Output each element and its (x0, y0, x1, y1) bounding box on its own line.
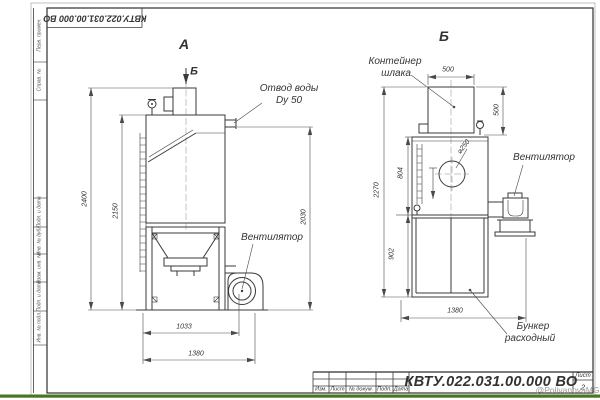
water-outlet-label-line1: Отвод воды (260, 84, 318, 94)
feed-hopper-label-line1: Бункер (517, 322, 550, 332)
frame-label-podp-data-2: Подп. и дата (38, 280, 43, 311)
frame-label-inv-dubl: Инв. № дубл. (38, 225, 43, 256)
view-a-drawing (136, 68, 268, 310)
section-marker-b: Б (190, 67, 198, 78)
title-col-list: Лист (330, 387, 344, 393)
title-col-data: Дата (394, 387, 409, 393)
title-col-podp: Подп. (377, 387, 392, 393)
feed-hopper-label-line2: расходный (505, 334, 555, 344)
frame-label-inv-podl: Инв. № подл. (38, 311, 43, 342)
dim-2150: 2150 (113, 203, 120, 219)
bottom-green-strip (0, 395, 600, 398)
dim-500-width: 500 (442, 67, 454, 74)
fan-label-view-b: Вентилятор (513, 153, 575, 163)
title-col-dokum: № докум. (349, 387, 373, 393)
dim-2030: 2030 (301, 209, 308, 225)
sheet-label: Лист (575, 373, 590, 379)
title-col-izm: Изм. (315, 387, 327, 393)
dim-902: 902 (389, 248, 396, 260)
frame-label-podp-data-1: Подп. и дата (38, 196, 43, 227)
dim-500-height: 500 (494, 104, 501, 116)
view-b-drawing (412, 80, 535, 297)
frame-label-perv-primen: Перв. примен. (38, 18, 43, 51)
frame-label-sprav-no: Справ. № (38, 69, 43, 92)
drawing-sheet: КВТУ.022.031.00.000 ВО Перв. примен. Спр… (0, 0, 600, 400)
view-b-dimensions (381, 74, 526, 334)
view-a-label: А (179, 37, 189, 51)
view-a-dimensions (88, 88, 313, 364)
slag-container-label-line2: шлака (381, 69, 411, 79)
dim-804: 804 (398, 167, 405, 179)
dim-2270: 2270 (374, 182, 381, 198)
view-b-label: Б (439, 29, 449, 43)
top-rotated-designation: КВТУ.022.031.00.000 ВО (43, 14, 146, 23)
fan-label-view-a: Вентилятор (241, 233, 303, 243)
water-outlet-label-line2: Dy 50 (276, 96, 302, 106)
frame-label-vzam-inv: Взам. инв. № (38, 253, 43, 284)
dim-1033: 1033 (176, 324, 192, 331)
author-watermark: @PolivanovaMG2021 (536, 386, 600, 395)
slag-container-label-line1: Контейнер (368, 57, 421, 67)
dim-2400: 2400 (82, 191, 89, 207)
dim-1380-view-a: 1380 (188, 351, 204, 358)
dim-1380-view-b: 1380 (447, 308, 463, 315)
